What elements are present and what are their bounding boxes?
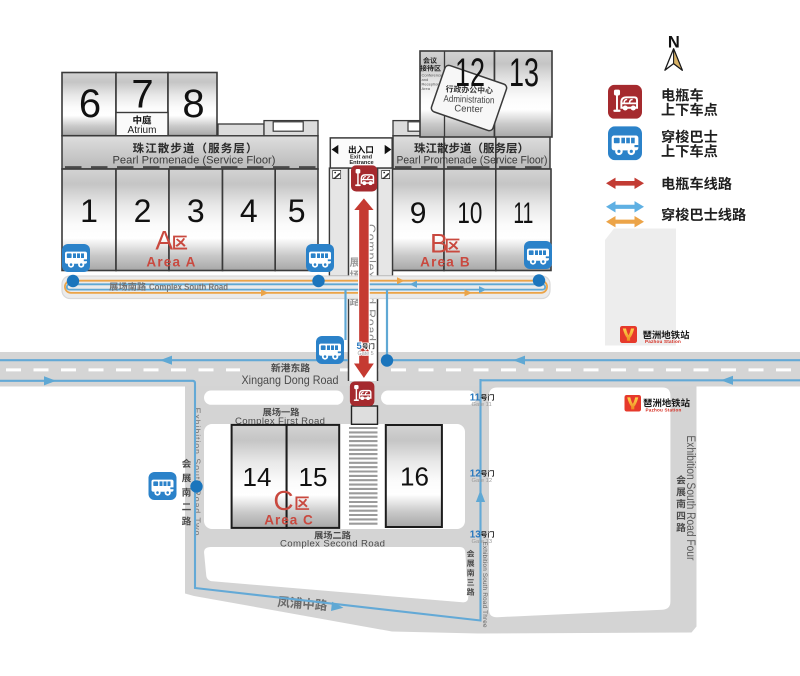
svg-text:Gate 5: Gate 5 — [358, 351, 374, 357]
svg-text:Area A: Area A — [146, 254, 196, 269]
svg-text:16: 16 — [400, 461, 429, 491]
svg-text:Pearl Promenade (Service Floor: Pearl Promenade (Service Floor) — [113, 154, 276, 166]
svg-text:1: 1 — [80, 193, 98, 229]
svg-text:12: 12 — [455, 51, 485, 95]
svg-text:Pazhou Station: Pazhou Station — [645, 339, 681, 344]
svg-text:Center: Center — [454, 103, 483, 115]
svg-text:13: 13 — [509, 51, 539, 95]
svg-text:2: 2 — [134, 193, 152, 229]
svg-text:Atrium: Atrium — [128, 125, 157, 136]
svg-text:11: 11 — [513, 197, 533, 230]
svg-text:Area: Area — [422, 86, 431, 91]
svg-text:8: 8 — [182, 82, 204, 126]
svg-text:Area B: Area B — [420, 255, 471, 270]
svg-text:9: 9 — [410, 197, 427, 230]
svg-text:Complex Second Road: Complex Second Road — [280, 538, 385, 549]
svg-text:Xingang Dong Road: Xingang Dong Road — [242, 374, 339, 387]
svg-text:Exhibition South Road Two: Exhibition South Road Two — [192, 408, 202, 536]
svg-text:Area C: Area C — [264, 513, 314, 528]
svg-text:6: 6 — [79, 82, 101, 126]
svg-text:A: A — [155, 226, 173, 256]
svg-text:15: 15 — [299, 462, 328, 492]
svg-text:3: 3 — [187, 193, 205, 229]
svg-text:Gate 11: Gate 11 — [472, 402, 492, 408]
svg-text:Pazhou Station: Pazhou Station — [646, 407, 682, 412]
svg-text:Exhibition South Road Three: Exhibition South Road Three — [481, 542, 488, 628]
svg-text:10: 10 — [457, 197, 482, 230]
svg-text:Gate 12: Gate 12 — [472, 478, 493, 484]
svg-text:Pearl Promenade (Service Floor: Pearl Promenade (Service Floor) — [397, 154, 548, 166]
svg-text:4: 4 — [240, 193, 258, 229]
svg-text:5: 5 — [288, 193, 306, 229]
svg-text:C: C — [273, 485, 293, 516]
svg-text:7: 7 — [131, 73, 153, 117]
svg-text:Exhibition South Road Four: Exhibition South Road Four — [684, 435, 696, 560]
svg-text:14: 14 — [243, 462, 272, 492]
svg-text:Gate 13: Gate 13 — [472, 539, 493, 545]
svg-text:Entrance: Entrance — [349, 160, 373, 166]
svg-text:Complex South Road: Complex South Road — [149, 282, 228, 292]
